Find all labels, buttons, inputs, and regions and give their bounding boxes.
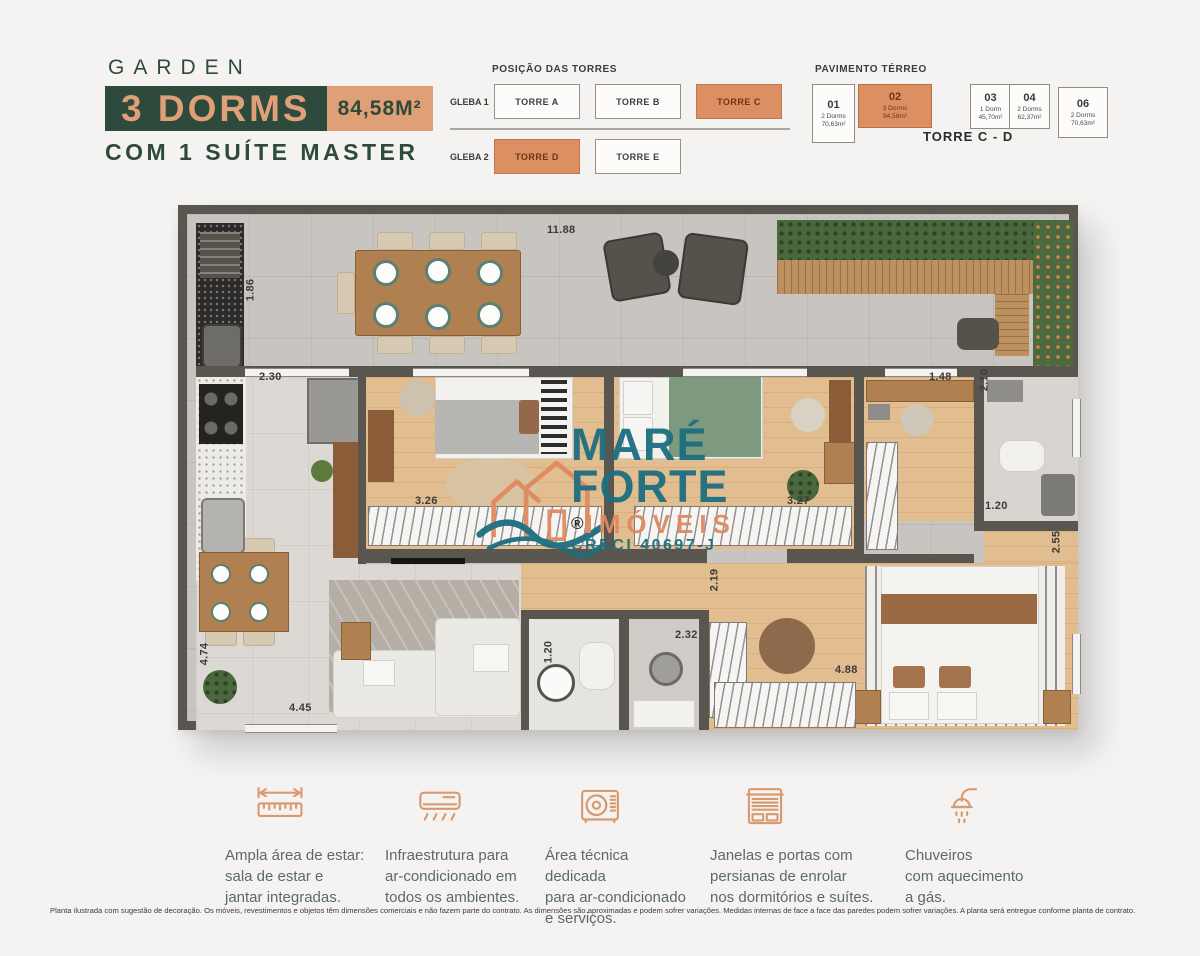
dimension-label: 1.20 <box>542 641 554 664</box>
cabinet <box>868 404 890 420</box>
shower-icon <box>935 784 1042 832</box>
wall <box>854 377 864 549</box>
watermark-line1: MARÉ <box>571 424 736 466</box>
watermark-creci: CRECI 40697-J <box>571 539 736 554</box>
ground-floor-diagram: PAVIMENTO TÉRREO 012 Dorms70,63m²023 Dor… <box>812 64 1112 175</box>
plate <box>373 260 399 286</box>
nightstand <box>1043 690 1071 724</box>
cooktop <box>199 384 243 444</box>
legal-disclaimer: Planta ilustrada com sugestão de decoraç… <box>50 906 1135 915</box>
plate <box>249 602 269 622</box>
dimension-label: 3.26 <box>415 495 438 507</box>
unit-area: 84,58m² <box>883 113 907 121</box>
towers-row: GLEBA 2TORRE DTORRE E <box>450 130 790 174</box>
pavimento-title: PAVIMENTO TÉRREO <box>815 64 1112 75</box>
tower-box: TORRE A <box>494 84 580 119</box>
unit-area: 70,63m² <box>822 121 846 129</box>
feature-text: Área técnica dedicadapara ar-condicionad… <box>545 845 692 929</box>
desk-chair <box>399 380 435 416</box>
roller-blind-icon <box>740 784 887 832</box>
pouf <box>759 618 815 674</box>
tower-box: TORRE B <box>595 84 681 119</box>
ac-unit-icon <box>415 784 527 832</box>
title-block: GARDEN 3 DORMS 84,58M² COM 1 SUÍTE MASTE… <box>105 56 433 166</box>
page-subtitle: COM 1 SUÍTE MASTER <box>105 139 433 166</box>
dimension-label: 1.86 <box>244 279 256 302</box>
unit-dorms: 2 Dorms <box>821 113 846 121</box>
dimension-label: 2.55 <box>1050 531 1062 554</box>
gleba-label: GLEBA 1 <box>450 97 494 107</box>
dimension-label: 2.32 <box>675 629 698 641</box>
watermark: MARÉ FORTE ® IMÓVEIS CRECI 40697-J <box>475 424 775 574</box>
side-table <box>341 622 371 660</box>
dimension-label: 1.20 <box>985 500 1008 512</box>
nightstand <box>855 690 881 724</box>
tower-caption: TORRE C - D <box>923 129 1013 144</box>
towers-title: POSIÇÃO DAS TORRES <box>492 64 790 75</box>
unit-number: 03 <box>984 92 996 105</box>
window <box>1072 399 1081 457</box>
tower-box: TORRE E <box>595 139 681 174</box>
door-opening <box>245 724 337 733</box>
plate <box>425 304 451 330</box>
unit-box: 042 Dorms62,37m² <box>1009 84 1050 129</box>
stool <box>957 318 999 350</box>
wall <box>864 554 974 563</box>
window <box>1072 634 1081 694</box>
unit-area-badge: 84,58M² <box>327 86 433 131</box>
wall <box>699 619 709 730</box>
flower-planter <box>1033 222 1073 368</box>
tower-boxes: TORRE DTORRE E <box>494 139 681 174</box>
feature-text-line: ar-condicionado em <box>385 866 527 887</box>
kitchen-cabinet <box>333 442 359 558</box>
feature-text-line: Infraestrutura para <box>385 845 527 866</box>
tower-boxes: TORRE ATORRE BTORRE C <box>494 84 782 119</box>
bed-throw <box>881 594 1037 624</box>
dimension-label: 11.88 <box>547 224 575 236</box>
feature-text-line: Ampla área de estar: <box>225 845 367 866</box>
dining-table-4 <box>199 552 289 632</box>
title-row: 3 DORMS 84,58M² <box>105 86 433 131</box>
chair <box>377 336 413 354</box>
feature-text-line: Área técnica dedicada <box>545 845 692 887</box>
plate <box>211 564 231 584</box>
terrace-sink <box>202 324 242 368</box>
towers-row: GLEBA 1TORRE ATORRE BTORRE C <box>450 84 790 130</box>
pillow <box>623 381 653 415</box>
dimension-label: 4.88 <box>835 664 858 676</box>
ac-condenser-icon <box>575 784 692 832</box>
plate <box>249 564 269 584</box>
unit-area: 70,63m² <box>1071 120 1095 128</box>
unit-number: 06 <box>1077 98 1089 111</box>
feature-text-line: jantar integradas. <box>225 887 367 908</box>
unit-number: 01 <box>827 99 839 112</box>
plate <box>425 258 451 284</box>
unit-area: 62,37m² <box>1018 114 1042 122</box>
window <box>683 368 807 377</box>
plant-pot <box>203 670 237 704</box>
unit-box: 062 Dorms70,63m² <box>1058 87 1108 138</box>
side-table <box>653 250 679 276</box>
unit-dorms: 1 Dorm <box>980 106 1001 114</box>
feature-text-line: Chuveiros <box>905 845 1042 866</box>
feature-text: Chuveiroscom aquecimentoa gás. <box>905 845 1042 908</box>
closet <box>714 682 856 728</box>
shower-head <box>649 652 683 686</box>
unit-box: 023 Dorms84,58m² <box>858 84 932 128</box>
watermark-line3: IMÓVEIS <box>586 512 736 536</box>
plate <box>477 260 503 286</box>
window <box>413 368 529 377</box>
watermark-text: MARÉ FORTE ® IMÓVEIS CRECI 40697-J <box>571 424 736 554</box>
feature-text: Ampla área de estar:sala de estar ejanta… <box>225 845 367 908</box>
feature-text-line: todos os ambientes. <box>385 887 527 908</box>
feature-text-line: para ar-condicionado <box>545 887 692 908</box>
lounge-chair <box>677 232 750 306</box>
unit-box: 031 Dorm45,70m² <box>970 84 1011 129</box>
wall <box>521 619 529 730</box>
unit-dorms: 3 Dorms <box>883 105 908 113</box>
kicker-text: GARDEN <box>108 56 433 80</box>
kitchen-sink <box>201 498 245 554</box>
dimension-label: 4.74 <box>198 643 210 666</box>
towers-rows: GLEBA 1TORRE ATORRE BTORRE CGLEBA 2TORRE… <box>450 84 790 174</box>
cushion <box>473 644 509 672</box>
chair <box>377 232 413 250</box>
office-desk <box>866 380 974 402</box>
deck-bench-vertical <box>995 294 1029 356</box>
wall <box>974 521 1078 531</box>
desk-chair <box>791 398 825 432</box>
toilet <box>579 642 615 690</box>
pillow <box>937 692 977 720</box>
feature-text: Janelas e portas compersianas de enrolar… <box>710 845 887 908</box>
wall <box>619 619 629 730</box>
round-sink <box>537 664 575 702</box>
bathroom-sink <box>1041 474 1075 516</box>
chair <box>429 336 465 354</box>
wall <box>358 377 366 564</box>
cushion <box>363 660 395 686</box>
pillow <box>939 666 971 688</box>
fruit-bowl <box>311 460 333 482</box>
deck-bench <box>777 260 1069 294</box>
wall <box>521 610 709 619</box>
feature-text-line: sala de estar e <box>225 866 367 887</box>
dimension-label: 2.10 <box>978 369 990 392</box>
feature-text-line: com aquecimento <box>905 866 1042 887</box>
unit-dorms: 2 Dorms <box>1017 106 1042 114</box>
wall <box>974 377 984 521</box>
unit-box: 012 Dorms70,63m² <box>812 84 855 143</box>
feature-text-line: persianas de enrolar <box>710 866 887 887</box>
page-title: 3 DORMS <box>105 86 327 131</box>
dimension-label: 3.27 <box>787 495 810 507</box>
unit-number: 02 <box>889 91 901 104</box>
unit-dorms: 2 Dorms <box>1071 112 1096 120</box>
registered-mark: ® <box>571 516 584 532</box>
towers-diagram: POSIÇÃO DAS TORRES GLEBA 1TORRE ATORRE B… <box>450 64 790 174</box>
watermark-line2: FORTE <box>571 466 736 508</box>
feature-text: Infraestrutura paraar-condicionado emtod… <box>385 845 527 908</box>
floor-plan: MARÉ FORTE ® IMÓVEIS CRECI 40697-J 11.88… <box>178 205 1078 730</box>
office-chair <box>901 404 933 436</box>
wall <box>787 549 864 563</box>
pillow <box>889 692 929 720</box>
unit-area: 45,70m² <box>979 114 1003 122</box>
chair <box>429 232 465 250</box>
desk <box>368 410 394 482</box>
unit-number: 04 <box>1023 92 1035 105</box>
chair <box>481 232 517 250</box>
feature-text-line: nos dormitórios e suítes. <box>710 887 887 908</box>
tv <box>391 558 465 564</box>
toilet <box>999 440 1045 472</box>
chair <box>481 336 517 354</box>
tower-box: TORRE C <box>696 84 782 119</box>
closet <box>866 442 898 550</box>
tower-box: TORRE D <box>494 139 580 174</box>
suite-floor-strip <box>984 531 1078 563</box>
feature-text-line: Janelas e portas com <box>710 845 887 866</box>
feature-text-line: a gás. <box>905 887 1042 908</box>
ruler-icon <box>255 784 367 832</box>
plate <box>373 302 399 328</box>
pillow <box>893 666 925 688</box>
dimension-label: 2.30 <box>259 371 282 383</box>
dimension-label: 4.45 <box>289 702 312 714</box>
dimension-label: 1.48 <box>929 371 952 383</box>
plate <box>211 602 231 622</box>
bathroom-counter <box>987 380 1023 402</box>
chair <box>337 272 355 314</box>
dresser <box>824 442 858 484</box>
plate <box>477 302 503 328</box>
gleba-label: GLEBA 2 <box>450 152 494 162</box>
hedge-planter <box>777 220 1069 260</box>
shower-bench <box>633 700 695 728</box>
grill <box>200 232 240 278</box>
fridge <box>307 378 363 444</box>
